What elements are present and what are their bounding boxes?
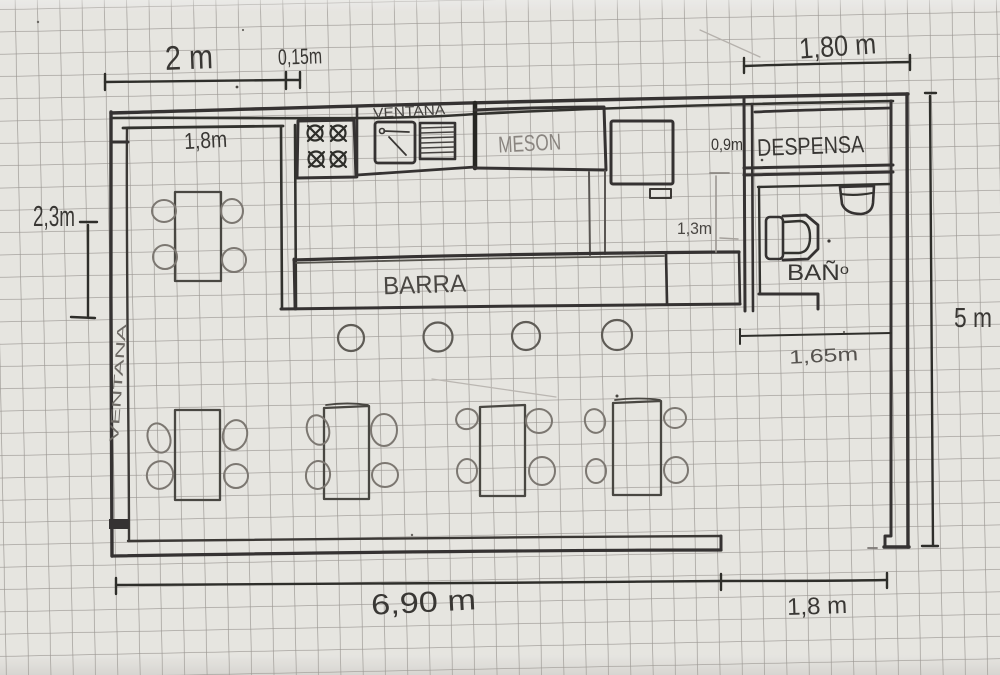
svg-text:2 m: 2 m xyxy=(164,38,213,78)
svg-text:0,15m: 0,15m xyxy=(278,43,323,70)
svg-text:6,90 m: 6,90 m xyxy=(370,584,477,621)
svg-text:5 m: 5 m xyxy=(954,302,992,333)
svg-text:DESPENSA: DESPENSA xyxy=(757,131,865,162)
svg-text:1,3m: 1,3m xyxy=(677,219,712,238)
svg-text:1,65m: 1,65m xyxy=(789,344,859,369)
svg-text:MESON: MESON xyxy=(497,128,561,157)
svg-text:1,80 m: 1,80 m xyxy=(798,28,877,65)
svg-text:2,3m: 2,3m xyxy=(33,201,75,233)
svg-text:0,9m: 0,9m xyxy=(711,135,743,154)
svg-text:1,8 m: 1,8 m xyxy=(787,592,848,621)
svg-text:1,8m: 1,8m xyxy=(183,126,227,154)
svg-text:BARRA: BARRA xyxy=(383,270,467,301)
